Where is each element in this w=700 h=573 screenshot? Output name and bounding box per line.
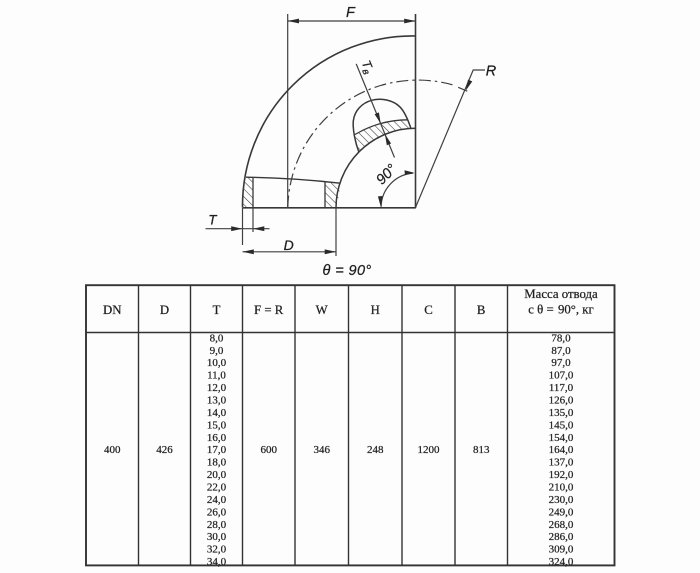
svg-text:137,0: 137,0 [549,457,574,469]
svg-text:10,0: 10,0 [207,357,227,369]
svg-text:600: 600 [260,444,277,456]
svg-text:9,0: 9,0 [210,345,224,357]
svg-text:F = R: F = R [254,303,284,317]
svg-text:24,0: 24,0 [207,494,227,506]
svg-text:8,0: 8,0 [210,332,224,344]
svg-text:D: D [284,237,294,253]
svg-text:12,0: 12,0 [207,382,227,394]
svg-text:D: D [160,303,169,317]
svg-text:20,0: 20,0 [207,469,227,481]
svg-text:268,0: 268,0 [549,519,574,531]
svg-text:28,0: 28,0 [207,519,227,531]
svg-text:14,0: 14,0 [207,407,227,419]
svg-text:97,0: 97,0 [551,357,571,369]
svg-text:R: R [486,64,497,80]
svg-text:346: 346 [313,444,330,456]
svg-text:164,0: 164,0 [549,444,574,456]
svg-text:813: 813 [473,444,490,456]
svg-text:C: C [424,303,433,317]
svg-text:Масса отвода: Масса отвода [524,287,598,301]
svg-text:400: 400 [104,444,121,456]
svg-text:30,0: 30,0 [207,531,227,543]
svg-text:17,0: 17,0 [207,444,227,456]
svg-text:θ = 90°: θ = 90° [323,263,372,279]
svg-text:16,0: 16,0 [207,432,227,444]
svg-text:126,0: 126,0 [549,395,574,407]
svg-text:117,0: 117,0 [549,382,574,394]
svg-text:107,0: 107,0 [549,370,574,382]
svg-text:286,0: 286,0 [549,531,574,543]
svg-text:87,0: 87,0 [551,345,571,357]
svg-text:с θ = 90°, кг: с θ = 90°, кг [528,302,593,316]
svg-text:B: B [477,303,486,317]
svg-text:26,0: 26,0 [207,506,227,518]
svg-text:H: H [371,303,380,317]
svg-text:DN: DN [103,303,121,317]
svg-text:T: T [213,303,221,317]
svg-text:15,0: 15,0 [207,419,227,431]
svg-text:F: F [346,5,356,21]
svg-text:230,0: 230,0 [549,494,574,506]
svg-text:309,0: 309,0 [549,544,574,556]
svg-text:248: 248 [367,444,384,456]
svg-text:1200: 1200 [418,444,441,456]
svg-text:32,0: 32,0 [207,544,227,556]
svg-text:135,0: 135,0 [549,407,574,419]
svg-text:18,0: 18,0 [207,457,227,469]
svg-text:145,0: 145,0 [549,419,574,431]
svg-text:192,0: 192,0 [549,469,574,481]
svg-text:13,0: 13,0 [207,395,227,407]
svg-text:154,0: 154,0 [549,432,574,444]
svg-text:11,0: 11,0 [207,370,226,382]
svg-text:W: W [316,303,329,317]
svg-text:426: 426 [156,444,173,456]
svg-text:34,0: 34,0 [207,556,227,568]
svg-text:78,0: 78,0 [551,332,571,344]
svg-text:249,0: 249,0 [549,506,574,518]
svg-text:22,0: 22,0 [207,482,227,494]
svg-text:210,0: 210,0 [549,482,574,494]
svg-text:324,0: 324,0 [549,556,574,568]
